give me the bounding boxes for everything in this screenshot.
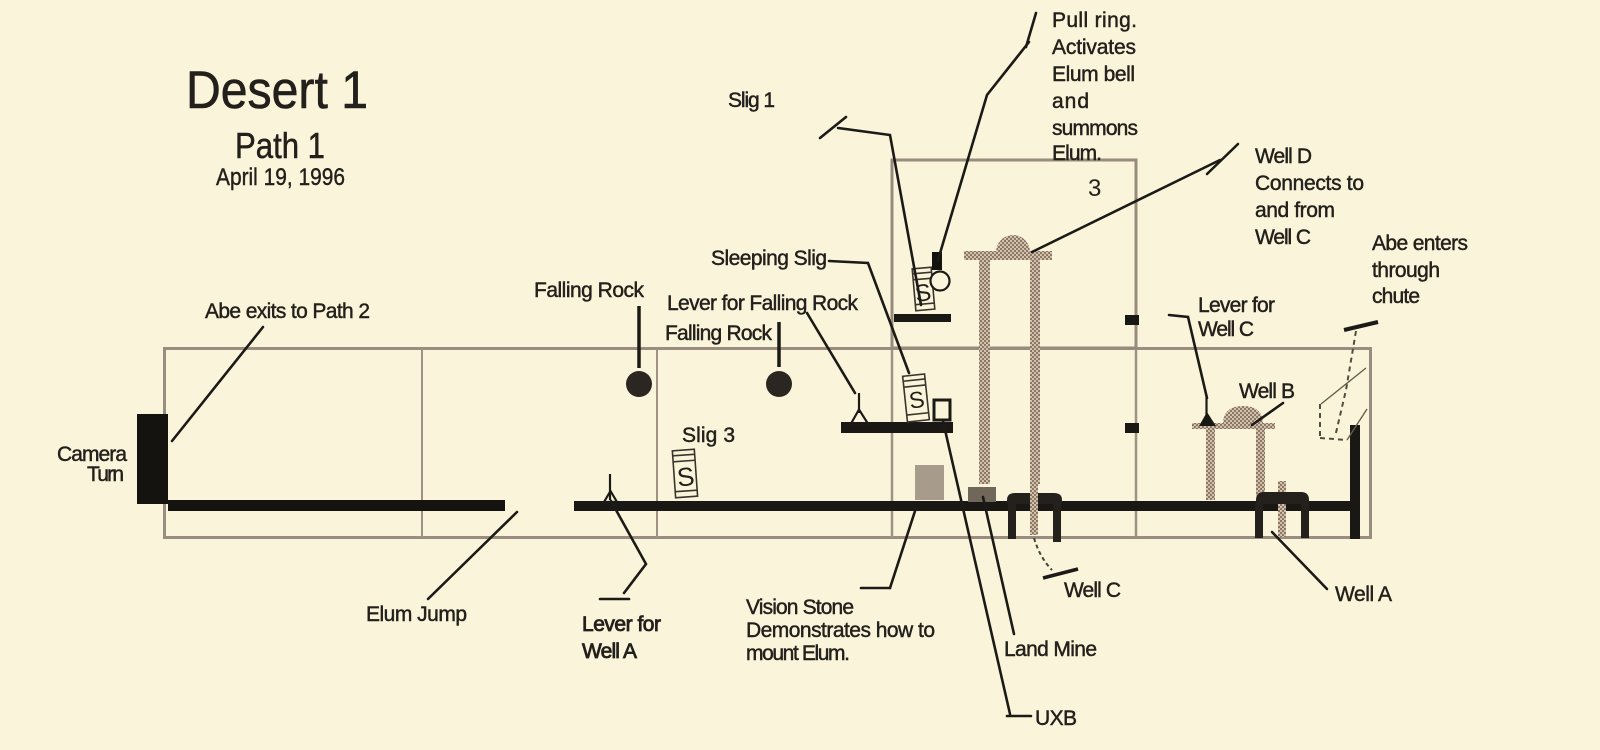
- svg-text:S: S: [675, 461, 695, 493]
- svg-text:Activates: Activates: [1052, 36, 1136, 59]
- svg-text:Desert 1: Desert 1: [186, 61, 368, 120]
- svg-text:Well B: Well B: [1239, 380, 1295, 403]
- svg-text:Abe exits to Path 2: Abe exits to Path 2: [205, 300, 370, 323]
- svg-text:Sleeping Slig: Sleeping Slig: [711, 247, 827, 270]
- svg-text:Elum Jump: Elum Jump: [366, 603, 467, 626]
- svg-text:Land Mine: Land Mine: [1004, 638, 1097, 661]
- svg-text:and: and: [1052, 90, 1089, 113]
- svg-text:summons: summons: [1052, 117, 1138, 140]
- svg-text:Vision Stone: Vision Stone: [746, 596, 854, 619]
- svg-text:Well C: Well C: [1255, 226, 1311, 249]
- svg-text:Well A: Well A: [582, 640, 637, 663]
- svg-text:3: 3: [1088, 175, 1101, 202]
- svg-text:Falling Rock: Falling Rock: [665, 322, 773, 345]
- svg-text:Demonstrates how to: Demonstrates how to: [746, 619, 935, 642]
- svg-text:UXB: UXB: [1035, 707, 1077, 730]
- svg-text:Lever for: Lever for: [582, 613, 661, 636]
- svg-text:Slig 3: Slig 3: [682, 424, 735, 447]
- svg-text:Lever for: Lever for: [1198, 294, 1275, 317]
- svg-text:mount Elum.: mount Elum.: [746, 642, 850, 665]
- svg-text:and from: and from: [1255, 199, 1335, 222]
- svg-text:Well C: Well C: [1064, 579, 1121, 602]
- svg-text:Lever for Falling Rock: Lever for Falling Rock: [667, 292, 859, 315]
- svg-text:through: through: [1372, 259, 1440, 282]
- svg-text:Path 1: Path 1: [235, 125, 325, 166]
- svg-text:Well C: Well C: [1198, 318, 1254, 341]
- svg-text:Pull ring.: Pull ring.: [1052, 9, 1137, 32]
- svg-text:chute: chute: [1372, 285, 1420, 308]
- svg-text:April 19, 1996: April 19, 1996: [216, 164, 345, 191]
- svg-text:Slig 1: Slig 1: [728, 89, 775, 112]
- svg-text:Well A: Well A: [1335, 583, 1392, 606]
- svg-text:Elum bell: Elum bell: [1052, 63, 1135, 86]
- svg-text:Elum.: Elum.: [1052, 142, 1102, 165]
- svg-text:Well D: Well D: [1255, 145, 1312, 168]
- svg-text:Turn: Turn: [87, 463, 124, 486]
- svg-text:Connects to: Connects to: [1255, 172, 1364, 195]
- svg-text:Abe enters: Abe enters: [1372, 232, 1468, 255]
- svg-text:Falling Rock: Falling Rock: [534, 279, 645, 302]
